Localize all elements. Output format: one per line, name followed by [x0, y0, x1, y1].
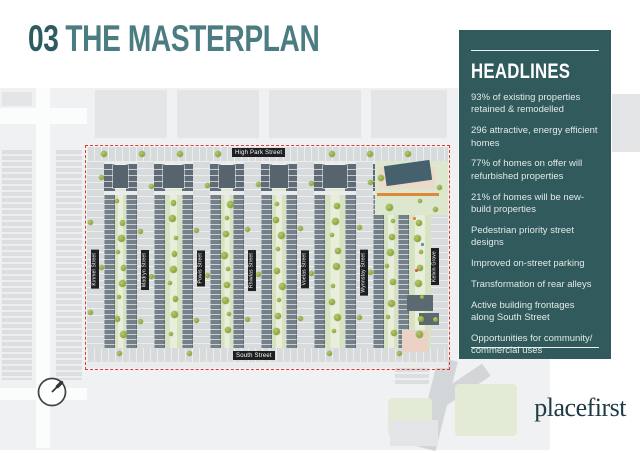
tree-icon — [149, 274, 154, 279]
page-title-text: THE MASTERPLAN — [65, 20, 319, 57]
tree-icon — [273, 328, 280, 335]
tree-icon — [194, 228, 199, 233]
tree-icon — [357, 225, 362, 230]
map-shape-orange — [377, 193, 439, 196]
map-shape-house — [154, 195, 165, 348]
tree-icon — [88, 220, 93, 225]
headline-item: 21% of homes will be new-build propertie… — [471, 192, 599, 217]
map-shape-ctx-block — [371, 90, 447, 138]
tree-icon — [298, 226, 303, 231]
tree-icon — [391, 219, 395, 223]
tree-icon — [225, 327, 231, 333]
street-label-south-street: South Street — [233, 351, 275, 360]
tree-icon — [330, 233, 334, 237]
tree-icon — [389, 234, 395, 240]
tree-icon — [309, 181, 314, 186]
headline-item: Improved on-street parking — [471, 258, 599, 270]
playground-dot — [415, 269, 418, 272]
tree-icon — [333, 263, 340, 270]
tree-icon — [88, 310, 93, 315]
tree-icon — [334, 203, 340, 209]
map-shape-house — [373, 195, 384, 348]
tree-icon — [215, 151, 221, 157]
map-shape-ctx-green — [455, 384, 517, 436]
tree-icon — [170, 266, 177, 273]
map-shape-house — [261, 195, 272, 348]
tree-icon — [245, 317, 250, 322]
tree-icon — [275, 202, 279, 206]
headline-item: 77% of homes on offer will refurbished p… — [471, 158, 599, 183]
headline-item: Opportunities for community/ commercial … — [471, 333, 599, 358]
headline-item: Active building frontages along South St… — [471, 300, 599, 325]
tree-icon — [386, 315, 390, 319]
playground-dot — [421, 243, 424, 246]
tree-icon — [335, 248, 341, 254]
tree-icon — [387, 249, 394, 256]
map-shape-ctx-block — [612, 94, 640, 152]
headlines-title: HEADLINES — [471, 60, 573, 84]
map-shape-ctx-strip — [56, 150, 82, 380]
tree-icon — [414, 235, 421, 242]
map-shape-newbuild — [113, 165, 128, 188]
map-shape-newbuild — [270, 165, 288, 188]
tree-icon — [115, 199, 119, 203]
panel-bottom-rule — [471, 347, 599, 348]
tree-icon — [115, 316, 121, 322]
headline-item: 296 attractive, energy efficient homes — [471, 125, 599, 150]
tree-icon — [174, 236, 178, 240]
map-shape-ctx-block — [390, 420, 438, 446]
street-label-kinmel-street: Kinmel Street — [91, 250, 99, 289]
tree-icon — [329, 151, 335, 157]
tree-icon — [149, 184, 154, 189]
north-arrow-icon — [34, 374, 70, 410]
tree-icon — [327, 351, 332, 356]
map-shape-house — [233, 195, 244, 348]
headlines-list: 93% of existing properties retained & re… — [471, 92, 599, 358]
tree-icon — [117, 351, 122, 356]
tree-icon — [433, 317, 438, 322]
map-shape-green — [115, 195, 126, 348]
tree-icon — [419, 250, 423, 254]
tree-icon — [169, 332, 173, 336]
street-label-powis-street: Powis Street — [197, 250, 205, 286]
tree-icon — [171, 200, 177, 206]
tree-icon — [99, 175, 104, 180]
tree-icon — [99, 265, 104, 270]
map-shape-ctx-strip — [395, 368, 429, 384]
street-label-rhiwlas-street: Rhiwlas Street — [248, 250, 256, 291]
tree-icon — [118, 235, 125, 242]
tree-icon — [273, 217, 279, 223]
headline-item: Pedestrian priority street designs — [471, 225, 599, 250]
tree-icon — [415, 280, 422, 287]
tree-icon — [378, 175, 384, 181]
tree-icon — [194, 318, 199, 323]
tree-icon — [368, 270, 373, 275]
tree-icon — [357, 315, 362, 320]
tree-icon — [173, 296, 179, 302]
tree-icon — [433, 207, 438, 212]
tree-icon — [117, 295, 121, 299]
tree-icon — [256, 182, 261, 187]
tree-icon — [368, 180, 373, 185]
map-shape-house — [314, 195, 325, 348]
tree-icon — [274, 268, 280, 274]
headlines-panel: HEADLINES 93% of existing properties ret… — [459, 30, 611, 359]
tree-icon — [416, 220, 422, 226]
tree-icon — [138, 319, 143, 324]
tree-icon — [245, 227, 250, 232]
tree-icon — [416, 331, 423, 338]
tree-icon — [334, 314, 341, 321]
masterplan-map: High Park Street South Street Kinmel Str… — [87, 147, 448, 368]
street-label-wynnstay-street: Wynnstay Street — [360, 250, 368, 296]
tree-icon — [205, 183, 210, 188]
map-shape-house — [345, 195, 356, 348]
tree-icon — [276, 247, 280, 251]
tree-icon — [275, 313, 281, 319]
map-shape-ctx-block — [2, 92, 32, 106]
page-title-number: 03 — [28, 20, 59, 57]
map-shape-house — [210, 195, 221, 348]
tree-icon — [224, 282, 230, 288]
tree-icon — [418, 316, 424, 322]
playground-dot — [413, 217, 416, 220]
tree-icon — [171, 311, 178, 318]
tree-icon — [222, 297, 229, 304]
tree-icon — [420, 295, 424, 299]
tree-icon — [116, 250, 120, 254]
street-label-madryn-street: Madryn Street — [141, 250, 149, 290]
tree-icon — [227, 312, 231, 316]
street-label-high-park-street: High Park Street — [232, 148, 285, 157]
map-shape-ctx-block — [177, 90, 259, 138]
tree-icon — [397, 351, 402, 356]
tree-icon — [437, 185, 442, 190]
tree-icon — [187, 351, 192, 356]
map-shape-newbuild — [323, 165, 347, 188]
tree-icon — [279, 283, 286, 290]
map-shape-house — [126, 195, 137, 348]
map-shape-house — [398, 195, 409, 348]
tree-icon — [418, 199, 422, 203]
tree-icon — [223, 231, 229, 237]
page-title: 03 THE MASTERPLAN — [28, 20, 319, 57]
tree-icon — [120, 220, 126, 226]
tree-icon — [139, 151, 145, 157]
tree-icon — [205, 273, 210, 278]
tree-icon — [101, 151, 107, 157]
tree-icon — [172, 251, 178, 257]
tree-icon — [332, 218, 339, 225]
tree-icon — [256, 272, 261, 277]
tree-icon — [405, 151, 411, 157]
map-shape-ctx-strip — [2, 150, 32, 380]
tree-icon — [385, 264, 389, 268]
map-shape-green — [384, 195, 398, 348]
tree-icon — [388, 300, 395, 307]
map-shape-ctx-block — [95, 90, 167, 138]
tree-icon — [367, 151, 373, 157]
tree-icon — [119, 280, 126, 287]
tree-icon — [329, 299, 335, 305]
tree-icon — [121, 265, 127, 271]
map-shape-newbuild — [163, 165, 184, 188]
tree-icon — [391, 330, 397, 336]
tree-icon — [278, 232, 285, 239]
map-shape-ctx-block — [269, 90, 361, 138]
panel-top-rule — [471, 50, 599, 51]
tree-icon — [177, 151, 183, 157]
map-shape-pink — [402, 330, 428, 352]
tree-icon — [226, 267, 230, 271]
tree-icon — [120, 331, 127, 338]
tree-icon — [332, 329, 336, 333]
headline-item: Transformation of rear alleys — [471, 279, 599, 291]
tree-icon — [221, 252, 228, 259]
headline-item: 93% of existing properties retained & re… — [471, 92, 599, 117]
tree-icon — [386, 204, 393, 211]
tree-icon — [138, 229, 143, 234]
map-shape-house — [182, 195, 193, 348]
tree-icon — [309, 271, 314, 276]
tree-icon — [390, 279, 396, 285]
tree-icon — [331, 284, 335, 288]
street-label-kelvin-grove: Kelvin Grove — [431, 248, 439, 285]
slide: 03 THE MASTERPLAN High Park Street South… — [0, 0, 640, 453]
map-shape-house — [286, 195, 297, 348]
tree-icon — [225, 216, 229, 220]
map-shape-newbuild — [219, 165, 235, 188]
tree-icon — [277, 298, 281, 302]
tree-icon — [168, 281, 172, 285]
map-shape-house — [104, 195, 115, 348]
tree-icon — [298, 316, 303, 321]
tree-icon — [227, 201, 234, 208]
street-label-voelas-street: Voelas Street — [301, 250, 309, 288]
placefirst-logo: placefirst — [534, 393, 626, 423]
tree-icon — [169, 215, 176, 222]
